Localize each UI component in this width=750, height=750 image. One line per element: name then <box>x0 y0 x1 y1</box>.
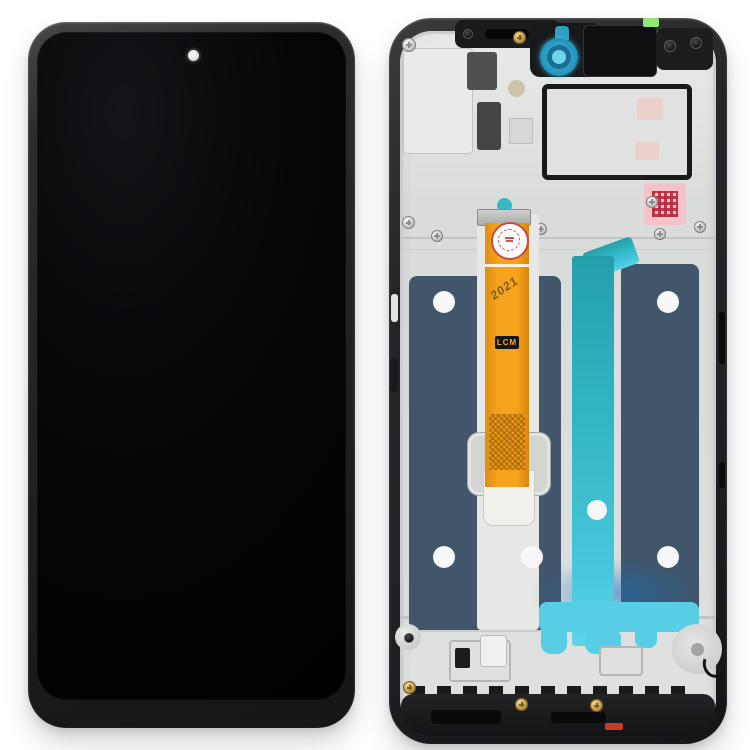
cyan-tab-right <box>635 620 657 648</box>
teal-strip <box>572 256 614 646</box>
side-button-slot <box>719 312 725 364</box>
foam-pad-mid <box>477 102 501 150</box>
alignment-hole <box>433 546 455 568</box>
cyan-tab-left <box>541 624 567 654</box>
front-display-assembly <box>28 22 355 728</box>
top-right-bracket <box>656 28 713 70</box>
bottom-white-bracket <box>480 635 507 667</box>
pink-patch-top <box>637 98 663 120</box>
flex-date-stamp: 2021 <box>489 273 521 303</box>
alignment-hole <box>433 291 455 313</box>
product-photo-canvas: { "scene": { "description": "Product pho… <box>0 0 750 750</box>
screw-silver <box>431 230 443 242</box>
bracket-screw-hole <box>664 40 676 52</box>
screw-silver <box>402 216 415 229</box>
lcm-label-chip: LCM <box>495 336 519 349</box>
left-edge-bracket <box>390 358 398 392</box>
qc-dial-marks <box>498 229 520 251</box>
screw-silver <box>646 196 658 208</box>
speaker-window-dark <box>583 25 657 77</box>
adhesive-dot-tan <box>508 80 525 97</box>
mic-port-slot <box>551 712 606 723</box>
foam-pad-top <box>467 52 497 90</box>
left-edge-slot <box>391 294 398 322</box>
plate-seam-line <box>400 237 716 239</box>
green-indicator-sticker <box>643 18 659 27</box>
bottom-black-band <box>401 694 715 736</box>
bracket-hole <box>463 29 473 39</box>
red-seal-tab <box>605 723 623 730</box>
screw-gold-top <box>513 31 526 44</box>
qc-dial-sticker <box>491 222 529 260</box>
alignment-hole <box>521 546 543 568</box>
bottom-bracket-etched-2 <box>599 646 643 676</box>
bracket-screw-hole-2 <box>690 37 702 49</box>
lcd-flex-ribbon: 2021 LCM <box>485 223 529 487</box>
side-button-slot-2 <box>719 462 725 488</box>
lcd-screen-black <box>37 32 346 700</box>
board-window-frame <box>542 84 692 180</box>
shield-panel <box>403 48 473 154</box>
small-plate-tab <box>509 118 533 144</box>
alignment-hole-teal <box>587 500 607 520</box>
rear-frame-assembly: 2021 LCM <box>389 18 727 744</box>
screw-gold-bottom <box>590 699 603 712</box>
loudspeaker-slot <box>431 710 501 724</box>
flex-white-line <box>485 264 529 267</box>
screw-gold-bottom <box>403 681 416 694</box>
screw-boss-hole <box>404 633 414 643</box>
screw-gold-bottom <box>515 698 528 711</box>
pink-patch-bottom <box>635 142 659 160</box>
front-camera-punch-hole <box>188 50 199 61</box>
alignment-hole <box>657 546 679 568</box>
screw-silver <box>402 38 416 52</box>
plate-seam-line-2 <box>400 249 716 250</box>
alignment-hole <box>657 291 679 313</box>
speaker-boss-center <box>691 643 704 656</box>
screw-silver <box>654 228 666 240</box>
bottom-dark-connector <box>455 648 470 668</box>
flex-hatched-section <box>489 414 525 470</box>
front-camera-lens-center <box>552 50 566 64</box>
screw-silver <box>694 221 706 233</box>
